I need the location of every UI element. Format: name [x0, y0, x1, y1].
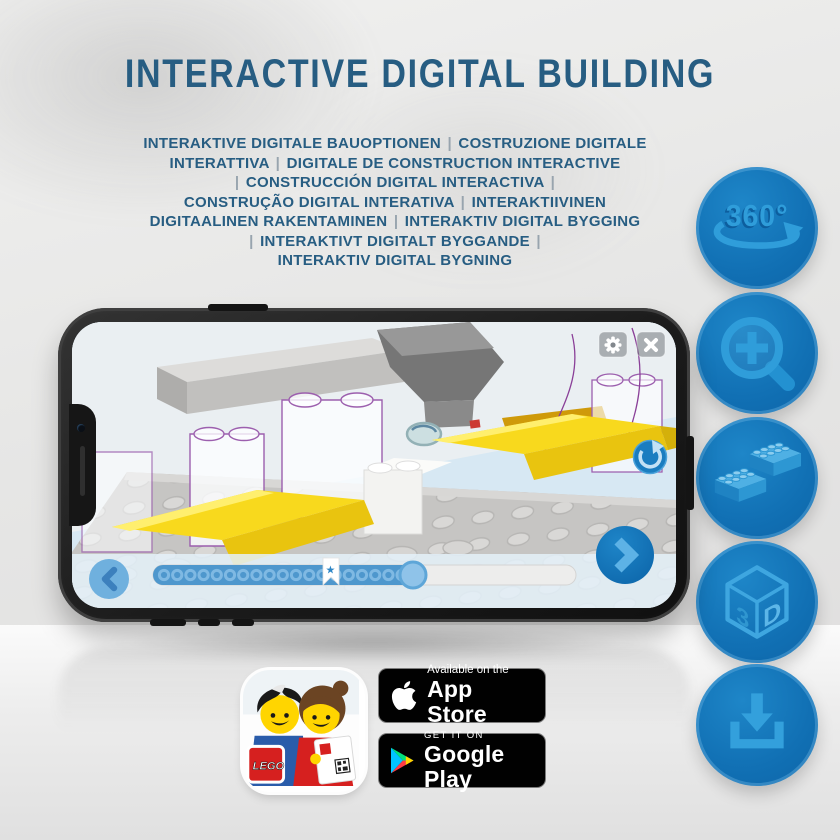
subtitle-line: CONSTRUÇÃO DIGITAL INTERATIVA | INTERAKT…	[85, 193, 705, 213]
feature-zoom-icon	[696, 292, 818, 414]
phone-button	[232, 619, 254, 626]
subtitle-line: INTERAKTIVE DIGITALE BAUOPTIONEN | COSTR…	[85, 134, 705, 154]
earpiece-speaker	[80, 446, 85, 496]
phone-power-button	[686, 436, 694, 510]
app-store-name: App Store	[427, 677, 535, 727]
feature-download-icon	[696, 664, 818, 786]
phone-reflection	[58, 648, 690, 758]
star-icon: ★	[326, 565, 336, 577]
feature-bricks-icon	[696, 417, 818, 539]
360-label: 360°	[726, 198, 789, 234]
poster: INTERACTIVE DIGITAL BUILDING INTERAKTIVE…	[0, 0, 840, 840]
app-screen: ★	[72, 322, 676, 608]
google-play-icon	[391, 745, 414, 776]
google-play-name: Google Play	[424, 742, 535, 792]
settings-button[interactable]	[599, 332, 627, 357]
svg-text:LEGO: LEGO	[253, 761, 285, 773]
front-camera	[77, 424, 85, 432]
feature-360-rotation-icon: 360°	[696, 167, 818, 289]
cube-letter-d: D	[763, 594, 781, 633]
subtitle-line: | INTERAKTIVT DIGITALT BYGGANDE |	[85, 232, 705, 252]
subtitle-line: | CONSTRUCCIÓN DIGITAL INTERACTIVA |	[85, 173, 705, 193]
phone-button	[198, 619, 220, 626]
page-title: INTERACTIVE DIGITAL BUILDING	[63, 52, 777, 97]
app-store-badge[interactable]: Available on the App Store	[378, 668, 546, 723]
3d-cube-icon: 3 D	[705, 550, 809, 654]
slider-thumb[interactable]	[400, 562, 426, 588]
lego-bricks-icon	[702, 423, 812, 533]
cube-letter-3: 3	[736, 601, 749, 635]
lego-logo: LEGO	[248, 746, 285, 782]
phone-button	[150, 619, 186, 626]
google-play-badge[interactable]: GET IT ON Google Play	[378, 733, 546, 788]
smartphone-mockup: ★	[58, 308, 690, 622]
phone-notch	[69, 404, 96, 526]
rotate-model-button[interactable]	[634, 440, 667, 474]
close-button[interactable]	[637, 332, 665, 357]
download-icon	[707, 675, 807, 775]
subtitle-line: INTERATTIVA | DIGITALE DE CONSTRUCTION I…	[85, 154, 705, 174]
lego-app-icon[interactable]: LEGO	[243, 670, 365, 792]
multilanguage-subtitle: INTERAKTIVE DIGITALE BAUOPTIONEN | COSTR…	[85, 134, 705, 271]
previous-step-button[interactable]	[89, 559, 129, 599]
subtitle-line: DIGITAALINEN RAKENTAMINEN | INTERAKTIV D…	[85, 212, 705, 232]
subtitle-line: INTERAKTIV DIGITAL BYGNING	[85, 251, 705, 271]
next-step-button[interactable]	[596, 526, 654, 584]
magnifier-plus-icon	[707, 303, 807, 403]
phone-button	[208, 304, 268, 311]
apple-logo-icon	[391, 679, 417, 712]
feature-3d-icon: 3 D	[696, 541, 818, 663]
